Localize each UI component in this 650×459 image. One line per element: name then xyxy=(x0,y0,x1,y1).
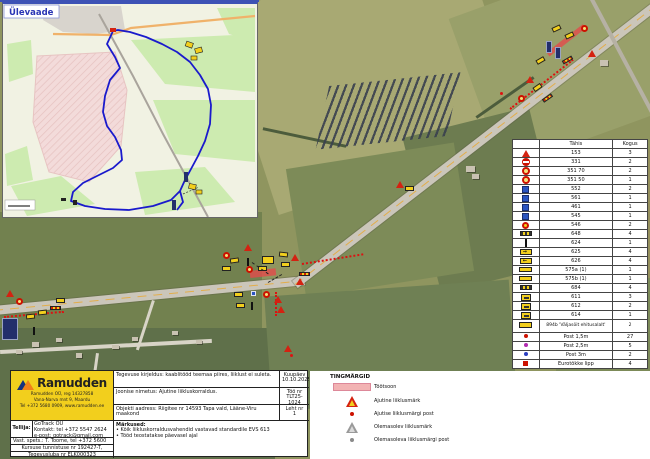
legend-item-label: Ajutise liiklusmärgi post xyxy=(374,411,434,417)
sign-count: 27 xyxy=(613,333,648,342)
table-row: 6122 xyxy=(513,302,648,311)
map-warning-sign xyxy=(291,254,299,261)
map-speed-sign xyxy=(581,25,588,32)
inset-scale-bar xyxy=(5,200,35,210)
map-board-sign xyxy=(262,256,274,264)
existing-post-icon xyxy=(350,438,354,442)
inset-sign-marker xyxy=(73,200,77,205)
sign-icon xyxy=(524,334,528,338)
farm-building xyxy=(600,60,608,66)
temporary-post-icon xyxy=(350,412,354,416)
sign-icon xyxy=(524,352,528,356)
sign-icon xyxy=(522,158,530,166)
sign-code: 546 xyxy=(539,221,613,230)
map-warning-sign xyxy=(296,278,304,285)
sign-icon xyxy=(521,294,531,301)
license-row: Tegevusluba nr ELK000323 xyxy=(11,452,114,459)
sign-code: 575a (1) xyxy=(539,266,613,275)
client-label: Tellija: xyxy=(11,421,33,438)
sign-code: 684 xyxy=(539,284,613,293)
inset-label: Ülevaade xyxy=(9,7,54,18)
building xyxy=(32,342,39,347)
table-row: 6141 xyxy=(513,311,648,320)
map-warning-sign xyxy=(396,181,404,188)
map-board-sign xyxy=(279,252,288,258)
map-board-sign xyxy=(236,303,245,308)
sign-icon xyxy=(522,150,530,157)
legend-item: Ajutise liiklusmärgi post xyxy=(330,411,650,417)
sign-icon xyxy=(523,361,528,366)
sign-icon xyxy=(521,303,531,310)
sign-code: 625 xyxy=(539,248,613,257)
map-board-sign xyxy=(405,186,414,191)
sign-code: Eurotõkke lipp xyxy=(539,360,613,369)
map-sign-post xyxy=(247,258,249,266)
sign-icon xyxy=(520,258,532,264)
sign-count: 1 xyxy=(613,266,648,275)
map-speed-sign xyxy=(263,291,270,298)
work-description-row: Tegevuse kirjeldus: kaablitööd teemaa pi… xyxy=(114,371,280,388)
sign-count: 4 xyxy=(613,230,648,239)
sign-count: 2 xyxy=(613,302,648,311)
map-board-sign xyxy=(222,266,231,271)
map-warning-sign xyxy=(526,76,534,83)
table-row: 6241 xyxy=(513,239,648,248)
table-row: 1533 xyxy=(513,149,648,158)
sign-code: 461 xyxy=(539,203,613,212)
sign-icon xyxy=(519,322,532,328)
note-item: • Tööd teostatakse päevasel ajal xyxy=(116,434,307,440)
sign-code: Post 3m xyxy=(539,351,613,360)
map-board-sign xyxy=(234,292,243,297)
sign-code: 351 70 xyxy=(539,167,613,176)
building xyxy=(112,345,119,349)
inset-sign-marker xyxy=(191,56,197,60)
sign-icon xyxy=(522,176,530,184)
sign-code: Post 2,5m xyxy=(539,342,613,351)
sign-icon xyxy=(522,204,529,211)
table-row: 4611 xyxy=(513,203,648,212)
map-post-dot xyxy=(290,354,293,357)
table-row: Eurotõkke lipp4 xyxy=(513,360,648,369)
map-warning-sign xyxy=(284,345,292,352)
map-warning-sign xyxy=(244,244,252,251)
sign-count: 1 xyxy=(613,311,648,320)
company-logo-box: Ramudden Ramudden OÜ, reg 14327858 Vana-… xyxy=(11,371,114,421)
date-cell: Kuupäev 10.10.2025 xyxy=(280,371,309,388)
sign-count: 1 xyxy=(613,212,648,221)
sign-icon xyxy=(522,213,529,220)
farm-building xyxy=(466,166,475,172)
sign-count: 1 xyxy=(613,176,648,185)
map-speed-sign xyxy=(16,298,23,305)
sign-count: 2 xyxy=(613,158,648,167)
map-warning-sign xyxy=(588,50,596,57)
table-row: 5522 xyxy=(513,185,648,194)
sign-code: 611 xyxy=(539,293,613,302)
title-block: Ramudden Ramudden OÜ, reg 14327858 Vana-… xyxy=(10,370,308,457)
sign-code: 351 50 xyxy=(539,176,613,185)
sign-code: 894b 'Väljasõit ehitusalalt' xyxy=(539,320,613,333)
sign-icon xyxy=(522,186,529,193)
job-number-cell: Töö nr TLT25-1024 xyxy=(280,388,309,405)
map-speed-sign xyxy=(246,266,253,273)
field-patch xyxy=(0,212,262,347)
table-row: 894b 'Väljasõit ehitusalalt'2 xyxy=(513,320,648,333)
sign-code: 545 xyxy=(539,212,613,221)
sign-icon xyxy=(522,195,529,202)
sign-code: 626 xyxy=(539,257,613,266)
sign-count: 1 xyxy=(613,239,648,248)
table-row: 6484 xyxy=(513,230,648,239)
sign-code: 624 xyxy=(539,239,613,248)
map-board-sign xyxy=(26,314,35,320)
brand-address-line: Tel +372 5680 0909, www.ramudden.ee xyxy=(13,404,111,409)
map-dark-board-sign xyxy=(2,318,18,340)
sign-code: 614 xyxy=(539,311,613,320)
inset-sign-marker xyxy=(188,183,196,189)
building xyxy=(196,340,202,344)
ramudden-logo: Ramudden xyxy=(13,377,111,391)
table-row: 575b (1)1 xyxy=(513,275,648,284)
sign-count: 2 xyxy=(613,167,648,176)
sign-code: 561 xyxy=(539,194,613,203)
sign-count: 1 xyxy=(613,203,648,212)
inset-dark-board-marker xyxy=(184,172,188,182)
map-board-sign xyxy=(281,262,290,267)
legend-item: Töötsoon xyxy=(330,383,650,391)
sign-count: 3 xyxy=(613,293,648,302)
sign-icon xyxy=(522,222,529,229)
sign-icon xyxy=(521,312,531,319)
map-sign-post xyxy=(251,302,253,310)
sign-icon xyxy=(519,267,532,272)
temporary-sign-icon xyxy=(346,396,358,407)
overview-map-canvas: Ülevaade xyxy=(3,4,257,217)
legend-item: Olemasoleva liiklusmärgi post xyxy=(330,437,650,443)
sign-count: 1 xyxy=(613,194,648,203)
sign-count: 1 xyxy=(613,275,648,284)
symbol-legend: TINGMÄRGID Töötsoon Ajutine liiklusmärk … xyxy=(310,371,650,459)
overview-inset-map: Ülevaade xyxy=(2,2,258,218)
brand-name: Ramudden xyxy=(37,377,107,391)
building xyxy=(76,353,82,358)
notes-block: Märkused: • Kõik liikluskorraldusvahendi… xyxy=(114,421,309,458)
table-row: 5451 xyxy=(513,212,648,221)
client-row: Tellija: GoTrack OÜ Kontakt: tel +372 55… xyxy=(11,421,114,438)
map-warning-sign xyxy=(274,296,282,303)
map-warning-sign xyxy=(6,290,14,297)
table-row: 3312 xyxy=(513,158,648,167)
existing-sign-icon xyxy=(346,422,358,433)
table-row: 5462 xyxy=(513,221,648,230)
building xyxy=(132,337,138,341)
legend-item-label: Ajutine liiklusmärk xyxy=(374,398,420,404)
legend-item-label: Olemasoleva liiklusmärgi post xyxy=(374,437,449,443)
logo-triangle-orange-icon xyxy=(22,380,34,390)
sign-count: 3 xyxy=(613,149,648,158)
map-warning-sign xyxy=(277,306,285,313)
sign-icon xyxy=(519,276,532,281)
inset-dark-board-marker xyxy=(172,200,176,210)
building xyxy=(16,350,22,354)
client-details: GoTrack OÜ Kontakt: tel +372 5547 2624 e… xyxy=(34,422,113,438)
sheet-number-cell: Leht nr 1 xyxy=(280,405,309,421)
sign-count: 2 xyxy=(613,320,648,333)
sign-code: 153 xyxy=(539,149,613,158)
sign-icon xyxy=(520,249,532,255)
map-speed-sign xyxy=(518,95,525,102)
map-dark-board-sign xyxy=(546,41,552,53)
table-row: 6254 xyxy=(513,248,648,257)
legend-item-label: Olemasolev liiklusmärk xyxy=(374,424,432,430)
building xyxy=(172,331,178,335)
table-row: 5611 xyxy=(513,194,648,203)
work-zone-swatch-icon xyxy=(333,383,371,391)
sign-count: 4 xyxy=(613,360,648,369)
table-row: 6844 xyxy=(513,284,648,293)
table-row: 6264 xyxy=(513,257,648,266)
sign-code: 612 xyxy=(539,302,613,311)
sign-icon xyxy=(520,231,532,236)
map-barrier-sign xyxy=(299,272,310,276)
date-value: 10.10.2025 xyxy=(282,378,307,384)
map-dark-board-sign xyxy=(555,47,561,59)
sign-icon xyxy=(522,167,530,175)
header-count-col: Kogus xyxy=(613,140,648,149)
object-address-row: Objekti aadress: Riigitee nr 14593 Tapa … xyxy=(114,405,280,421)
brand-address-line: Vana-Narva mnt 9, Maardu xyxy=(13,398,111,403)
drawing-title-row: Joonise nimetus: Ajutine liikluskorraldu… xyxy=(114,388,280,405)
job-value: TLT25-1024 xyxy=(282,395,307,405)
legend-item-label: Töötsoon xyxy=(374,384,396,390)
sign-code: 552 xyxy=(539,185,613,194)
sign-count: 4 xyxy=(613,257,648,266)
sign-icon xyxy=(525,239,527,247)
table-header-row: Tähis Kogus xyxy=(513,140,648,149)
sign-count: 2 xyxy=(613,221,648,230)
map-sign-post xyxy=(33,327,35,335)
table-row: 351 501 xyxy=(513,176,648,185)
sign-icon xyxy=(520,285,532,290)
farm-building xyxy=(472,174,479,179)
sign-code: 648 xyxy=(539,230,613,239)
table-row: Post 3m2 xyxy=(513,351,648,360)
table-row: 351 702 xyxy=(513,167,648,176)
legend-item: Ajutine liiklusmärk xyxy=(330,396,650,407)
sign-count: 5 xyxy=(613,342,648,351)
sign-count: 2 xyxy=(613,351,648,360)
inset-sign-marker xyxy=(61,198,66,201)
map-post-dot xyxy=(500,92,503,95)
sign-quantity-table: Tähis Kogus 1533 3312 351 702 351 501 55… xyxy=(512,139,648,369)
inset-work-site-marker xyxy=(110,28,116,32)
sign-code: Post 1,5m xyxy=(539,333,613,342)
legend-item: Olemasolev liiklusmärk xyxy=(330,422,650,433)
map-board-sign xyxy=(38,310,47,316)
ta-plan-sheet: Ülevaade Tähis Kogus 1533 3312 351 702 3… xyxy=(0,0,650,459)
header-icon-col xyxy=(513,140,540,149)
table-row: 6113 xyxy=(513,293,648,302)
map-arrow-sign xyxy=(56,298,65,303)
table-row: Post 2,5m5 xyxy=(513,342,648,351)
table-row: Post 1,5m27 xyxy=(513,333,648,342)
map-barrier-sign xyxy=(50,306,61,310)
sign-count: 4 xyxy=(613,284,648,293)
sheet-value: 1 xyxy=(282,412,307,418)
sign-count: 2 xyxy=(613,185,648,194)
sign-icon xyxy=(524,343,528,347)
sign-code: 575b (1) xyxy=(539,275,613,284)
sign-count: 4 xyxy=(613,248,648,257)
table-row: 575a (1)1 xyxy=(513,266,648,275)
building xyxy=(56,338,62,342)
brand-address-line: Ramudden OÜ, reg 14327858 xyxy=(13,392,111,397)
sign-code: 331 xyxy=(539,158,613,167)
header-code-col: Tähis xyxy=(539,140,613,149)
symbol-legend-title: TINGMÄRGID xyxy=(330,374,650,380)
map-info-sign xyxy=(251,291,256,296)
responsible-row: Vast. spets.: T. Toome, tel +372 5600 50… xyxy=(11,438,114,445)
inset-sign-marker xyxy=(196,190,202,194)
